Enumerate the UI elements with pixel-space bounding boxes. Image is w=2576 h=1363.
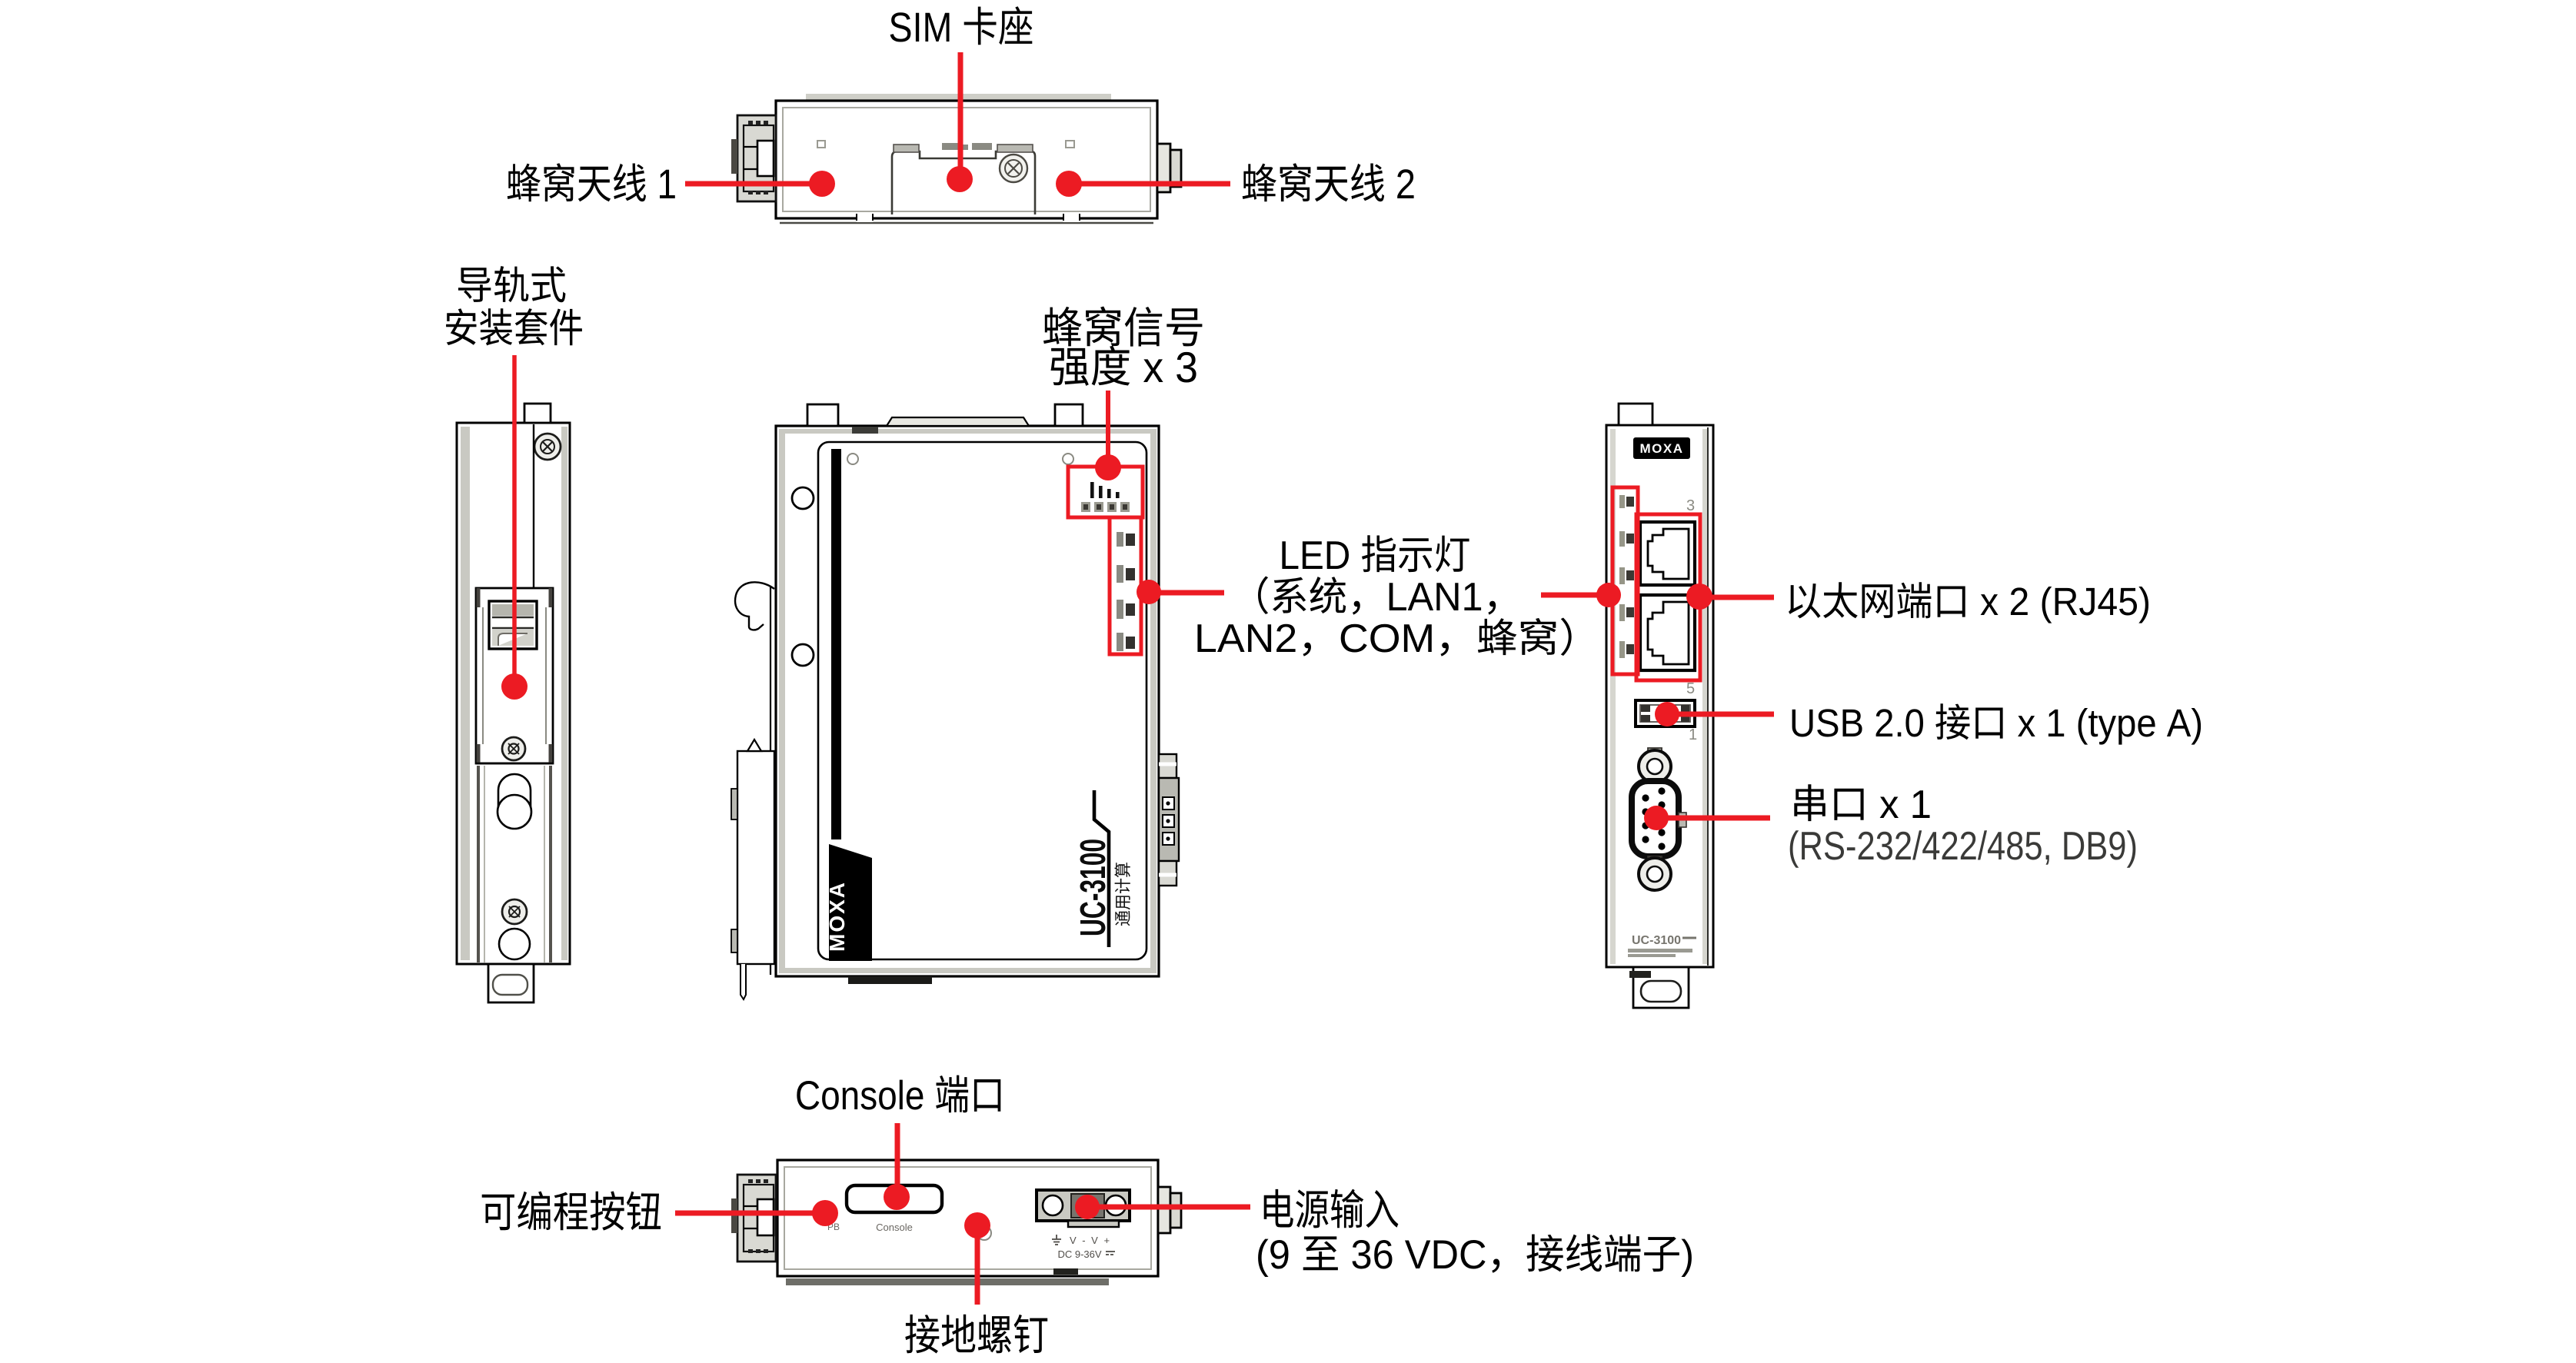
svg-text:MOXA: MOXA — [825, 881, 849, 952]
svg-text:UC-3100: UC-3100 — [1073, 839, 1113, 936]
svg-text:3: 3 — [1686, 497, 1695, 514]
svg-text:MOXA: MOXA — [1640, 441, 1684, 456]
svg-text:Console: Console — [876, 1222, 913, 1233]
svg-text:1: 1 — [1689, 726, 1697, 743]
svg-text:V - V +: V - V + — [1070, 1235, 1111, 1246]
svg-text:5: 5 — [1686, 680, 1695, 697]
svg-text:UC-3100: UC-3100 — [1632, 934, 1681, 947]
svg-text:DC 9-36V: DC 9-36V — [1057, 1248, 1101, 1260]
